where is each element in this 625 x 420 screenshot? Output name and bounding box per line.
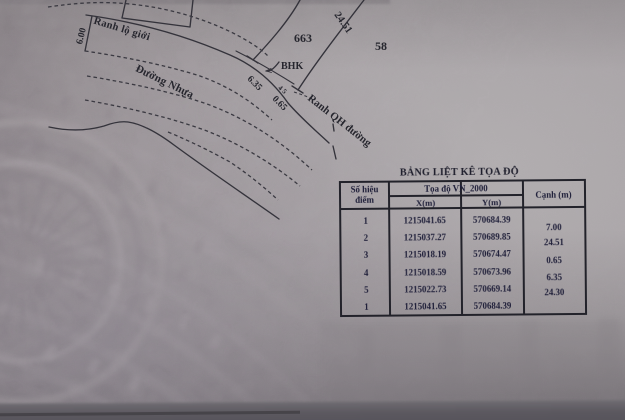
- svg-text:1215037.27: 1215037.27: [404, 232, 447, 242]
- svg-text:BHK: BHK: [281, 61, 303, 72]
- svg-text:Số hiệu: Số hiệu: [350, 184, 378, 194]
- svg-text:24.30: 24.30: [544, 287, 565, 297]
- svg-text:663: 663: [294, 31, 312, 45]
- svg-text:1: 1: [363, 216, 368, 226]
- svg-text:6.35: 6.35: [546, 272, 562, 282]
- svg-text:1215041.65: 1215041.65: [404, 215, 447, 225]
- svg-text:BẢNG LIỆT KÊ TỌA ĐỘ: BẢNG LIỆT KÊ TỌA ĐỘ: [400, 164, 519, 178]
- svg-text:1215018.19: 1215018.19: [404, 249, 447, 259]
- svg-text:570684.39: 570684.39: [474, 301, 512, 311]
- svg-text:1215018.59: 1215018.59: [404, 267, 447, 277]
- svg-text:1215041.65: 1215041.65: [404, 301, 447, 311]
- svg-text:3: 3: [364, 250, 369, 260]
- svg-text:570674.47: 570674.47: [473, 249, 511, 259]
- svg-text:570689.85: 570689.85: [473, 232, 511, 242]
- svg-text:1215022.73: 1215022.73: [404, 284, 447, 294]
- svg-text:X(m): X(m): [416, 198, 435, 208]
- svg-text:5: 5: [364, 285, 369, 295]
- svg-text:58: 58: [375, 39, 387, 53]
- svg-text:1: 1: [364, 302, 369, 312]
- svg-text:Cạnh (m): Cạnh (m): [535, 190, 571, 200]
- svg-text:24.51: 24.51: [544, 237, 564, 247]
- svg-text:7.00: 7.00: [546, 222, 562, 232]
- svg-text:Tọa độ VN_2000: Tọa độ VN_2000: [424, 183, 488, 194]
- svg-text:0.65: 0.65: [546, 255, 562, 265]
- svg-text:570669.14: 570669.14: [473, 284, 511, 294]
- svg-text:4: 4: [364, 268, 369, 278]
- svg-text:570684.39: 570684.39: [473, 215, 511, 225]
- svg-text:2: 2: [364, 233, 369, 243]
- svg-text:Y(m): Y(m): [482, 197, 501, 207]
- svg-text:570673.96: 570673.96: [473, 267, 511, 277]
- svg-text:điểm: điểm: [355, 195, 374, 205]
